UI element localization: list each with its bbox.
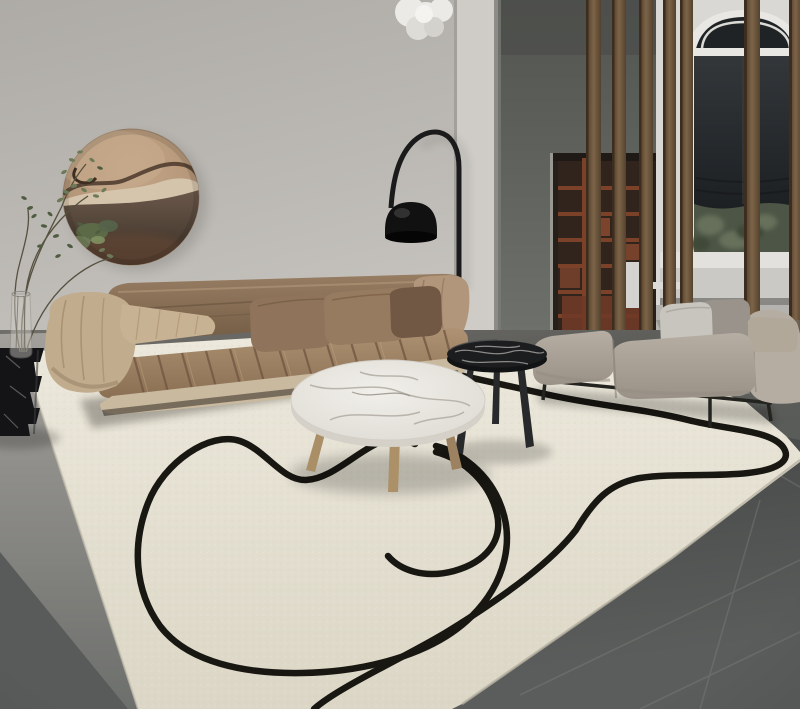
scene-root (0, 0, 800, 709)
living-room-photo (0, 0, 800, 709)
vignette-overlay (0, 0, 800, 709)
